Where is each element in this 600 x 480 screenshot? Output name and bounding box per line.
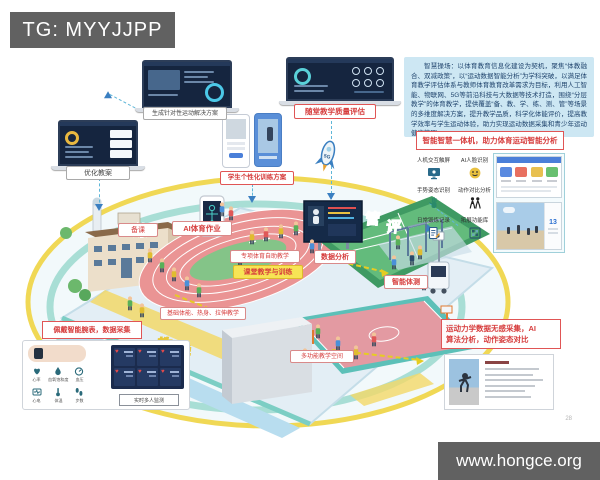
- hand-gesture-icon: [427, 196, 441, 210]
- feature-gesture: 手势姿态识别: [414, 186, 453, 210]
- ai-face-icon: [468, 166, 482, 180]
- stat-count: 13: [549, 219, 557, 226]
- feature-function-library: 拓展功能库: [455, 216, 494, 240]
- metric-ecg: 心电: [27, 387, 47, 404]
- label-data-analysis: 数据分析: [314, 250, 356, 264]
- label-ai-homework: AI体育作业: [172, 221, 232, 236]
- motion-title-line2: 算法分析，动作姿态对比: [446, 334, 556, 345]
- watermark-top: TG: MYYJJPP: [10, 12, 175, 48]
- heart-icon: [32, 366, 42, 376]
- squat-figure: [449, 359, 479, 405]
- laptop-solution: [142, 60, 232, 112]
- smartwatch: [34, 348, 43, 359]
- page-number: 28: [565, 416, 572, 422]
- metric-grid: 心率 血氧饱和度 血压 心电: [27, 366, 89, 404]
- label-basic-teach: 基础体能、热身、拉伸教学: [160, 307, 246, 320]
- metric-steps: 步数: [69, 387, 89, 404]
- classroom-stat-panel: 13: [544, 203, 561, 249]
- label-class-training: 课堂教学与训练: [233, 265, 303, 279]
- phone-app-1: [222, 114, 250, 168]
- feature-exercise-record: 日常锻炼记录: [414, 216, 453, 240]
- laptop-quality: [286, 57, 394, 105]
- wristband-panel-title: 佩戴智能腕表，数据采集: [42, 321, 142, 339]
- laptop-solution-screen: [142, 60, 232, 108]
- classroom-screenshot: 13: [496, 202, 562, 250]
- arrow-down-phone: [248, 196, 256, 203]
- realtime-monitor-label: 实时多人监测: [119, 394, 179, 406]
- watermark-bottom: www.hongce.org: [438, 442, 600, 480]
- intro-text: 智慧操场：以体育教育信息化建设为契机，聚焦“体教融合、双减政策”，以“运动数据智…: [411, 62, 587, 137]
- metric-heart-rate: 心率: [27, 366, 47, 383]
- feature-touchscreen: 人机交互触屏: [414, 156, 453, 180]
- droplet-icon: [53, 366, 63, 376]
- library-icon: [468, 226, 482, 240]
- arrow-down-court: [327, 193, 335, 200]
- rocket-icon: 5G: [314, 139, 340, 180]
- gauge-icon: [74, 366, 84, 376]
- machine-panel-title: 智能智慧一体机，助力体育运动智能分析: [416, 131, 564, 150]
- laptop-quality-screen: [286, 57, 394, 101]
- outline-word-evaluate: 评: [385, 219, 402, 236]
- phone-app-2: [254, 113, 282, 167]
- feature-motion-compare: 动作对比分析: [455, 186, 494, 210]
- metric-temperature: 体温: [47, 387, 70, 404]
- thermometer-icon: [53, 387, 63, 397]
- metric-spo2: 血氧饱和度: [47, 366, 70, 383]
- ecg-icon: [32, 387, 42, 397]
- classroom-photo: [497, 203, 544, 249]
- laptop-lesson-plan: [58, 120, 138, 170]
- label-student-training: 学生个性化训练方案: [220, 171, 294, 185]
- machine-screenshots: 13: [493, 153, 565, 253]
- label-quality: 随堂教学质量评估: [294, 104, 376, 119]
- label-multi-space: 多功能教学空间: [290, 350, 354, 363]
- outline-word-manage: 管: [364, 210, 381, 228]
- infographic-page: 练 管 评 教 学 优化教案: [0, 0, 600, 480]
- arrow-down-school: [95, 204, 103, 211]
- motion-analysis-card: [444, 354, 554, 410]
- compare-figures-icon: [468, 196, 482, 210]
- label-lesson-plan: 优化教案: [66, 166, 130, 180]
- analysis-text-lines: [485, 361, 547, 401]
- label-solution: 生成针对性运动解决方案: [143, 107, 227, 120]
- record-icon: [427, 226, 441, 240]
- label-smart-test: 智能体测: [384, 275, 428, 289]
- laptop-lesson-plan-screen: [58, 120, 138, 166]
- vitals-dashboard: ♥♥♥ ♥♥♥: [111, 345, 184, 389]
- app-dashboard-screenshot: [496, 156, 562, 198]
- intro-box: 智慧操场：以体育教育信息化建设为契机，聚焦“体教融合、双减政策”，以“运动数据智…: [404, 57, 594, 137]
- footsteps-icon: [74, 387, 84, 397]
- motion-panel-title: 运动力学数据无感采集，AI 算法分析，动作姿态对比: [441, 319, 561, 349]
- label-self-teach: 专项体育自助教学: [230, 250, 300, 263]
- feature-face-recognition: AI人脸识别: [455, 156, 494, 180]
- label-prep: 备课: [118, 223, 158, 237]
- wrist-photo: [28, 345, 86, 362]
- wristband-card: 心率 血氧饱和度 血压 心电: [22, 340, 190, 410]
- motion-title-line1: 运动力学数据无感采集，AI: [446, 323, 556, 334]
- machine-feature-grid: 人机交互触屏 AI人脸识别 手势姿态识别: [414, 156, 494, 240]
- touchscreen-icon: [427, 166, 441, 180]
- metric-blood-pressure: 血压: [69, 366, 89, 383]
- athlete-photo: [449, 359, 479, 405]
